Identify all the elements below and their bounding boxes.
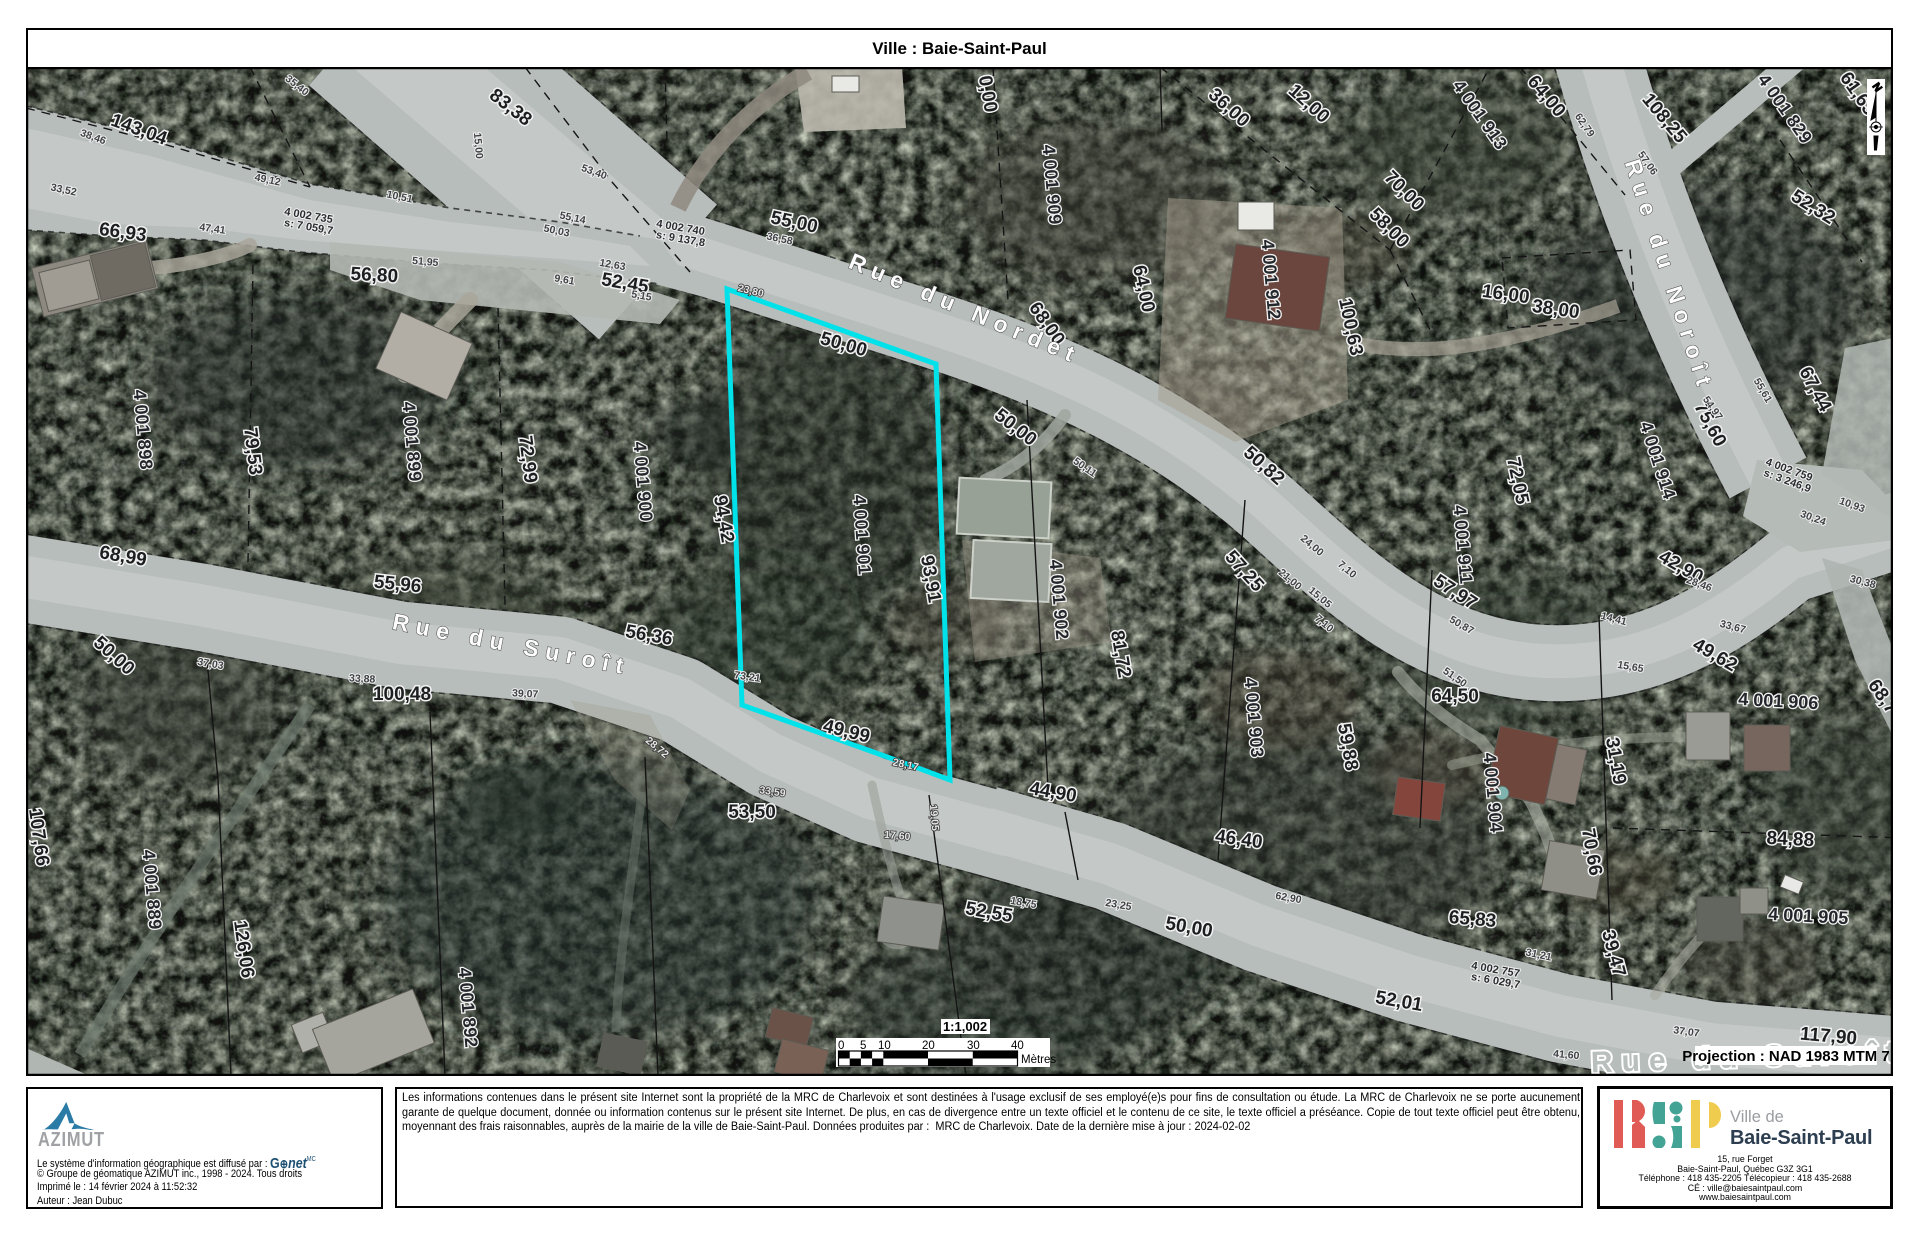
svg-text:17,60: 17,60 xyxy=(884,829,911,843)
svg-text:100,48: 100,48 xyxy=(373,684,431,705)
svg-text:65,83: 65,83 xyxy=(1448,907,1497,932)
svg-text:40: 40 xyxy=(1011,1040,1024,1052)
svg-text:4 001 905: 4 001 905 xyxy=(1768,904,1849,928)
svg-text:4 001 906: 4 001 906 xyxy=(1738,689,1819,713)
svg-text:1:1,002: 1:1,002 xyxy=(943,1019,987,1034)
svg-text:41,60: 41,60 xyxy=(1553,1048,1580,1062)
svg-text:10: 10 xyxy=(878,1040,891,1052)
svg-text:64,50: 64,50 xyxy=(1431,686,1479,707)
svg-text:Projection : NAD 1983 MTM 7: Projection : NAD 1983 MTM 7 xyxy=(1682,1048,1890,1065)
svg-text:20: 20 xyxy=(922,1040,935,1052)
svg-text:19,05: 19,05 xyxy=(927,804,941,831)
svg-text:53,50: 53,50 xyxy=(728,802,776,823)
svg-text:0: 0 xyxy=(838,1040,844,1052)
svg-text:56,80: 56,80 xyxy=(350,264,399,287)
svg-text:5: 5 xyxy=(860,1040,866,1052)
svg-text:15,00: 15,00 xyxy=(471,132,485,159)
svg-text:30: 30 xyxy=(967,1040,980,1052)
svg-text:Mètres: Mètres xyxy=(1021,1054,1056,1066)
svg-text:39,07: 39,07 xyxy=(512,687,539,700)
svg-text:33,88: 33,88 xyxy=(349,672,376,685)
svg-text:84,88: 84,88 xyxy=(1766,828,1815,851)
svg-text:51,95: 51,95 xyxy=(412,255,439,269)
